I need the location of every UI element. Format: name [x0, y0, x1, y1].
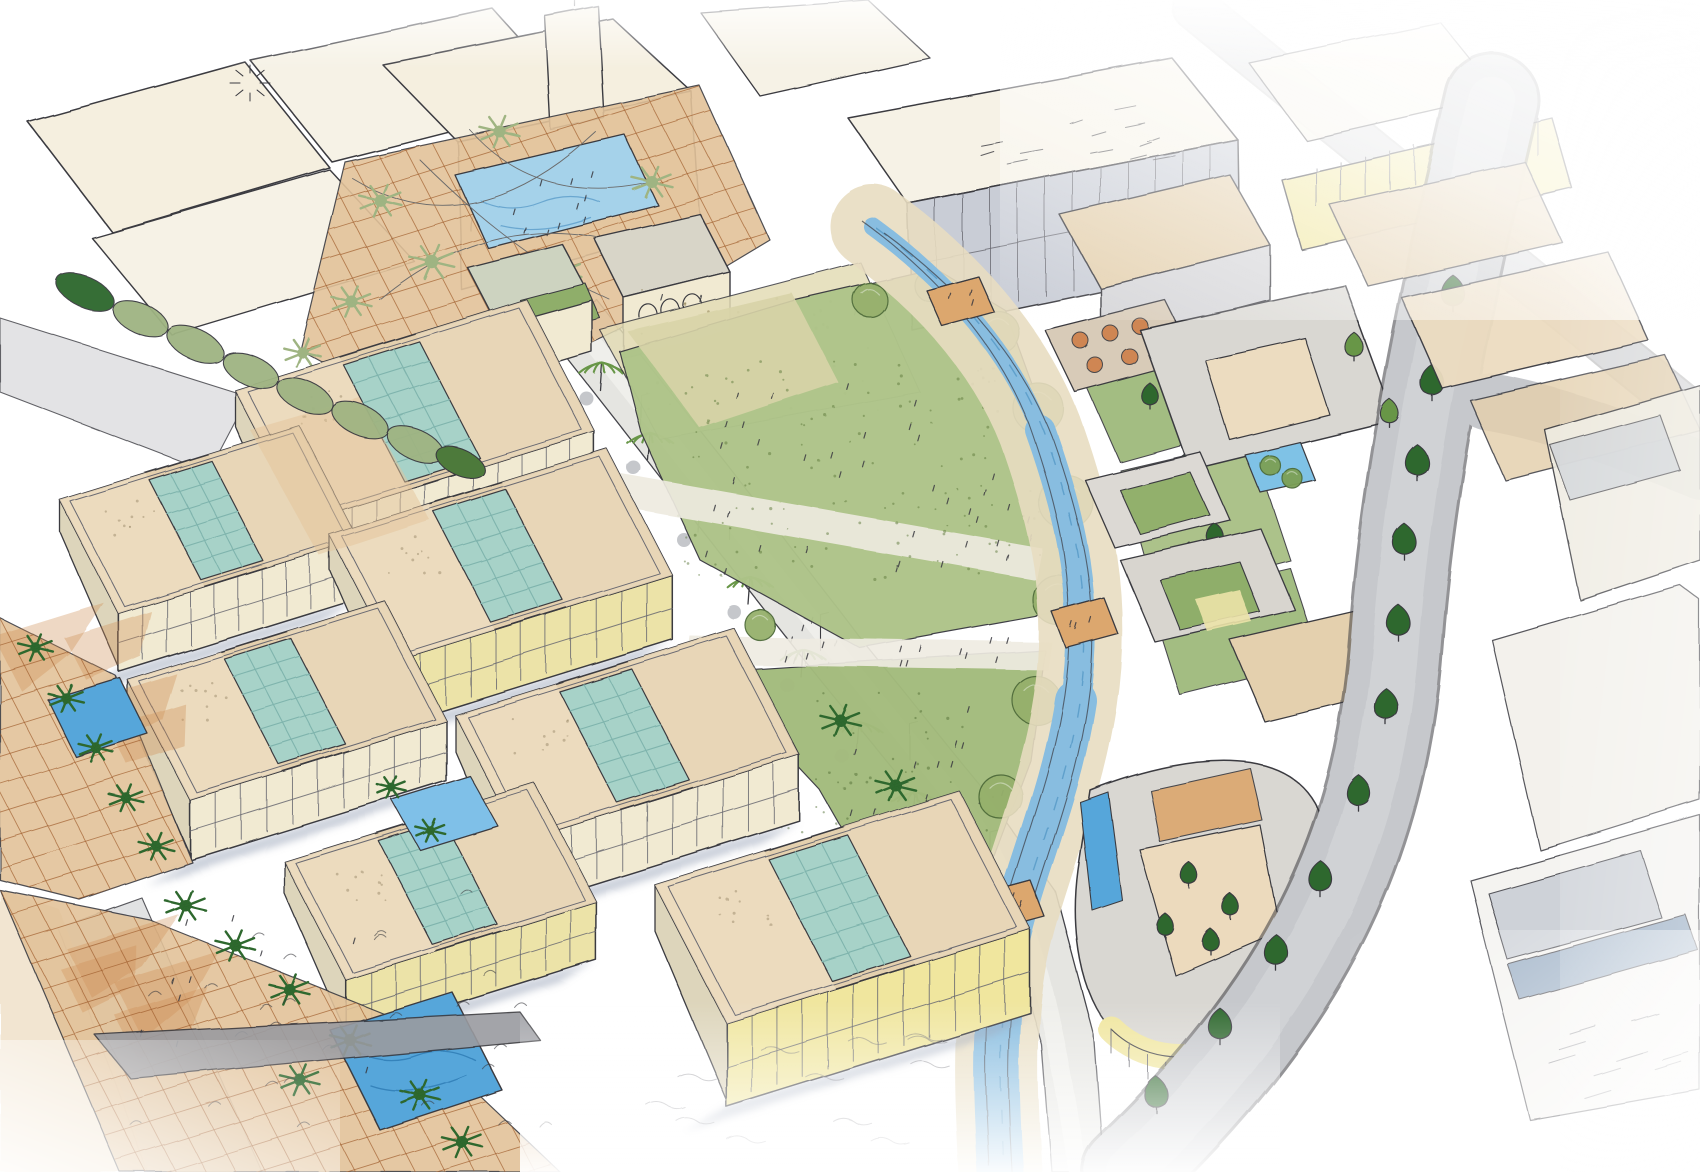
palm-tree-icon-part [579, 391, 593, 405]
texture-speckle-part [957, 397, 960, 400]
texture-speckle-part [943, 491, 945, 493]
texture-speckle-part [872, 577, 875, 580]
texture-speckle-part [690, 386, 692, 388]
texture-speckle-part [401, 548, 404, 551]
texture-speckle-part [511, 717, 513, 719]
texture-speckle-part [868, 776, 871, 779]
texture-speckle-part [858, 521, 861, 524]
texture-speckle-part [832, 502, 835, 505]
texture-speckle-part [900, 374, 903, 377]
texture-speckle-part [810, 467, 813, 470]
texture-speckle-part [188, 684, 190, 686]
texture-speckle-part [362, 871, 365, 874]
texture-speckle-part [563, 739, 566, 742]
texture-speckle-part [439, 572, 442, 575]
texture-speckle-part [771, 523, 773, 525]
texture-speckle-part [824, 414, 827, 417]
texture-speckle-part [962, 727, 964, 729]
texture-speckle-part [938, 561, 940, 563]
texture-speckle-part [911, 770, 913, 772]
texture-speckle-part [940, 464, 942, 466]
texture-speckle-part [787, 528, 789, 530]
rooftop-terrace-part [1087, 357, 1103, 373]
texture-speckle-part [946, 524, 948, 526]
texture-speckle-part [816, 779, 818, 781]
texture-speckle-part [822, 692, 824, 694]
texture-speckle-part [989, 543, 991, 545]
texture-speckle-part [642, 290, 644, 292]
texture-speckle-part [387, 572, 389, 574]
texture-speckle-part [983, 435, 985, 437]
texture-speckle-part [911, 422, 913, 424]
texture-speckle-part [986, 829, 988, 831]
edge-fades-part [0, 0, 1700, 70]
texture-speckle-part [823, 812, 825, 814]
texture-speckle-part [984, 525, 987, 528]
texture-speckle-part [684, 560, 686, 562]
texture-speckle-part [956, 487, 958, 489]
texture-speckle-part [143, 516, 145, 518]
texture-speckle-part [914, 444, 916, 446]
texture-speckle-part [849, 440, 851, 442]
texture-speckle-part [213, 693, 216, 696]
rooftop-terrace-part [1122, 349, 1138, 365]
texture-speckle-part [685, 304, 688, 307]
tree-icon [853, 283, 887, 317]
texture-speckle-part [800, 830, 802, 832]
texture-speckle-part [687, 562, 690, 565]
texture-speckle-part [698, 574, 700, 576]
texture-speckle-part [124, 525, 127, 528]
texture-speckle-part [907, 535, 909, 537]
texture-speckle-part [830, 773, 833, 776]
palm-tree-icon-part [627, 461, 641, 475]
texture-speckle-part [804, 425, 806, 427]
texture-speckle-part [699, 457, 701, 459]
texture-speckle-part [858, 432, 861, 435]
texture-speckle-part [733, 921, 736, 924]
texture-speckle-part [380, 874, 382, 876]
texture-speckle-part [850, 782, 853, 785]
texture-speckle-part [356, 899, 358, 901]
texture-speckle-part [131, 516, 134, 519]
texture-speckle-part [769, 507, 772, 510]
texture-speckle-part [720, 574, 723, 577]
texture-speckle-part [866, 781, 869, 784]
tree-icon [1282, 468, 1302, 488]
tree-icon-part [745, 610, 775, 640]
tree-icon [745, 610, 775, 640]
texture-speckle-part [943, 529, 946, 532]
texture-speckle-part [696, 432, 698, 434]
tree-icon-part [853, 283, 887, 317]
texture-speckle-part [684, 392, 687, 395]
texture-speckle-part [832, 406, 835, 409]
tree-icon-part [1260, 455, 1280, 475]
texture-speckle-part [719, 897, 722, 900]
texture-speckle-part [927, 767, 930, 770]
texture-speckle-part [897, 542, 900, 545]
texture-speckle-part [428, 558, 430, 560]
texture-speckle-part [118, 520, 121, 523]
texture-speckle-part [566, 718, 568, 720]
texture-speckle-part [726, 898, 729, 901]
texture-speckle-part [991, 504, 993, 506]
texture-speckle-part [995, 550, 998, 553]
texture-speckle-part [959, 456, 962, 459]
texture-speckle-part [930, 422, 932, 424]
texture-speckle-part [515, 753, 518, 756]
texture-speckle-part [685, 536, 687, 538]
texture-speckle-part [422, 551, 424, 553]
texture-speckle-part [747, 467, 750, 470]
texture-speckle-part [968, 524, 970, 526]
texture-speckle-part [838, 782, 840, 784]
texture-speckle-part [986, 426, 989, 429]
texture-speckle-part [950, 781, 952, 783]
texture-speckle-part [720, 914, 722, 916]
texture-speckle-part [385, 899, 387, 901]
texture-speckle-part [203, 689, 206, 692]
texture-speckle-part [967, 496, 970, 499]
edge-fades-part [0, 1040, 340, 1172]
texture-speckle-part [412, 559, 415, 562]
texture-speckle-part [957, 378, 960, 381]
texture-speckle-part [909, 556, 912, 559]
texture-speckle-part [920, 710, 923, 713]
texture-speckle-part [733, 912, 736, 915]
texture-speckle-part [716, 402, 719, 405]
tree-icon [1260, 455, 1280, 475]
texture-speckle-part [947, 718, 950, 721]
texture-speckle-part [871, 462, 873, 464]
texture-speckle-part [943, 533, 946, 536]
texture-speckle-part [205, 704, 208, 707]
texture-speckle-part [736, 507, 738, 509]
texture-speckle-part [224, 695, 227, 698]
texture-speckle-part [817, 459, 820, 462]
texture-speckle-part [895, 521, 898, 524]
texture-speckle-part [736, 551, 739, 554]
texture-speckle-part [995, 541, 998, 544]
tree-icon-part [1282, 468, 1302, 488]
texture-speckle-part [980, 484, 982, 486]
texture-speckle-part [730, 528, 732, 530]
texture-speckle-part [884, 507, 886, 509]
texture-speckle-part [705, 373, 708, 376]
texture-speckle-part [971, 452, 974, 455]
texture-speckle-part [786, 389, 789, 392]
texture-speckle-part [892, 758, 894, 760]
texture-speckle-part [423, 572, 426, 575]
texture-speckle-part [811, 418, 814, 421]
texture-speckle-part [984, 457, 986, 459]
texture-speckle-part [746, 368, 749, 371]
texture-speckle-part [908, 400, 910, 402]
texture-speckle-part [898, 404, 901, 407]
texture-speckle-part [114, 535, 117, 538]
texture-speckle-part [851, 731, 853, 733]
texture-speckle-part [713, 399, 715, 401]
texture-speckle-part [552, 730, 555, 733]
texture-speckle-part [929, 409, 931, 411]
texture-speckle-part [883, 575, 886, 578]
texture-speckle-part [340, 396, 343, 399]
texture-speckle-part [735, 890, 738, 893]
texture-speckle-part [816, 699, 818, 701]
texture-speckle-part [543, 750, 545, 752]
texture-speckle-part [795, 546, 797, 548]
texture-speckle-part [724, 376, 726, 378]
texture-speckle-part [749, 483, 751, 485]
texture-speckle-part [205, 718, 208, 721]
texture-speckle-part [414, 536, 417, 539]
texture-speckle-part [708, 420, 711, 423]
texture-speckle-part [406, 553, 408, 555]
texture-speckle-part [934, 507, 936, 509]
texture-speckle-part [210, 681, 212, 683]
texture-speckle-part [347, 889, 350, 892]
texture-speckle-part [916, 763, 919, 766]
texture-speckle-part [844, 500, 847, 503]
texture-speckle-part [766, 917, 769, 920]
texture-speckle-part [902, 492, 905, 495]
texture-speckle-part [897, 382, 900, 385]
texture-speckle-part [892, 503, 894, 505]
texture-speckle-part [968, 568, 971, 571]
texture-speckle-part [745, 485, 747, 487]
edge-fades-part [1560, 0, 1700, 1172]
texture-speckle-part [853, 362, 856, 365]
texture-speckle-part [801, 424, 803, 426]
texture-speckle-part [725, 442, 728, 445]
texture-speckle-part [694, 534, 697, 537]
texture-speckle-part [769, 452, 772, 455]
texture-speckle-part [917, 506, 919, 508]
texture-speckle-part [693, 457, 695, 459]
texture-speckle-part [378, 881, 381, 884]
texture-speckle-part [801, 444, 803, 446]
texture-speckle-part [978, 572, 980, 574]
rooftop-terrace-part [1102, 325, 1118, 341]
texture-speckle-part [863, 415, 865, 417]
texture-speckle-part [960, 397, 963, 400]
texture-speckle-part [766, 914, 768, 916]
texture-speckle-part [957, 555, 959, 557]
texture-speckle-part [847, 818, 849, 820]
texture-speckle-part [755, 566, 758, 569]
texture-speckle-part [567, 735, 569, 737]
texture-speckle-part [792, 560, 795, 563]
texture-speckle-part [855, 773, 858, 776]
sketch-canvas [0, 0, 1700, 1172]
texture-speckle-part [898, 364, 901, 367]
texture-speckle-part [835, 823, 837, 825]
texture-speckle-part [917, 692, 920, 695]
texture-speckle-part [355, 877, 358, 880]
texture-speckle-part [380, 883, 382, 885]
texture-speckle-part [769, 923, 772, 926]
texture-speckle-part [927, 738, 929, 740]
texture-speckle-part [878, 692, 880, 694]
texture-speckle-part [546, 744, 549, 747]
texture-speckle-part [816, 806, 818, 808]
texture-speckle-part [833, 474, 836, 477]
texture-speckle-part [783, 508, 785, 510]
texture-speckle-part [811, 565, 814, 568]
texture-speckle-part [543, 735, 546, 738]
texture-speckle-part [867, 391, 869, 393]
masterplan-sketch [0, 0, 1700, 1172]
texture-speckle-part [904, 771, 906, 773]
rooftop-terrace-part [1072, 332, 1088, 348]
texture-speckle-part [925, 732, 927, 734]
texture-speckle-part [1008, 544, 1010, 546]
texture-speckle-part [782, 379, 784, 381]
texture-speckle-part [329, 391, 331, 393]
texture-speckle-part [715, 564, 717, 566]
texture-speckle-part [180, 688, 183, 691]
texture-speckle-part [105, 510, 107, 512]
texture-speckle-part [963, 514, 965, 516]
edge-fades-part [520, 1000, 1280, 1172]
texture-speckle-part [154, 511, 156, 513]
texture-speckle-part [827, 533, 830, 536]
texture-speckle-part [778, 370, 781, 373]
texture-speckle-part [832, 360, 834, 362]
texture-speckle-part [844, 788, 847, 791]
texture-speckle-part [751, 507, 754, 510]
texture-speckle-part [377, 892, 380, 895]
texture-speckle-part [915, 717, 917, 719]
texture-speckle-part [336, 873, 339, 876]
texture-speckle-part [758, 359, 761, 362]
texture-speckle-part [731, 380, 734, 383]
palm-tree-icon-part [727, 605, 741, 619]
texture-speckle-part [826, 548, 829, 551]
texture-speckle-part [136, 500, 139, 503]
texture-speckle-part [194, 688, 197, 691]
texture-speckle-part [417, 553, 419, 555]
texture-speckle-part [739, 900, 741, 902]
texture-speckle-part [129, 526, 131, 528]
texture-speckle-part [722, 522, 724, 524]
